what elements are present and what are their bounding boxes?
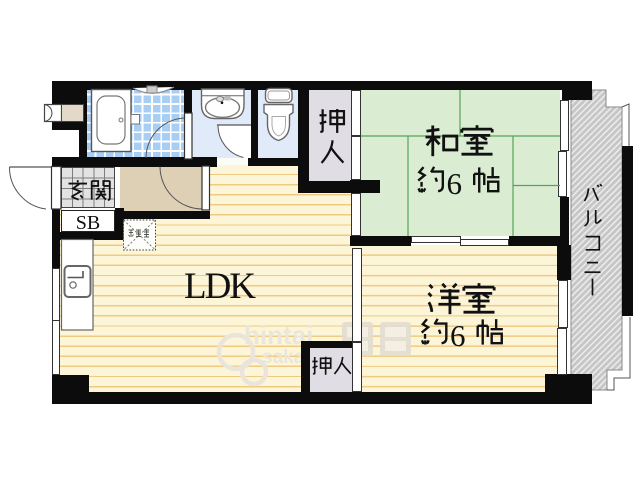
svg-text:LDK: LDK [184, 266, 256, 307]
svg-text:6: 6 [450, 318, 466, 353]
svg-text:6: 6 [447, 166, 463, 201]
svg-text:SB: SB [76, 212, 100, 234]
